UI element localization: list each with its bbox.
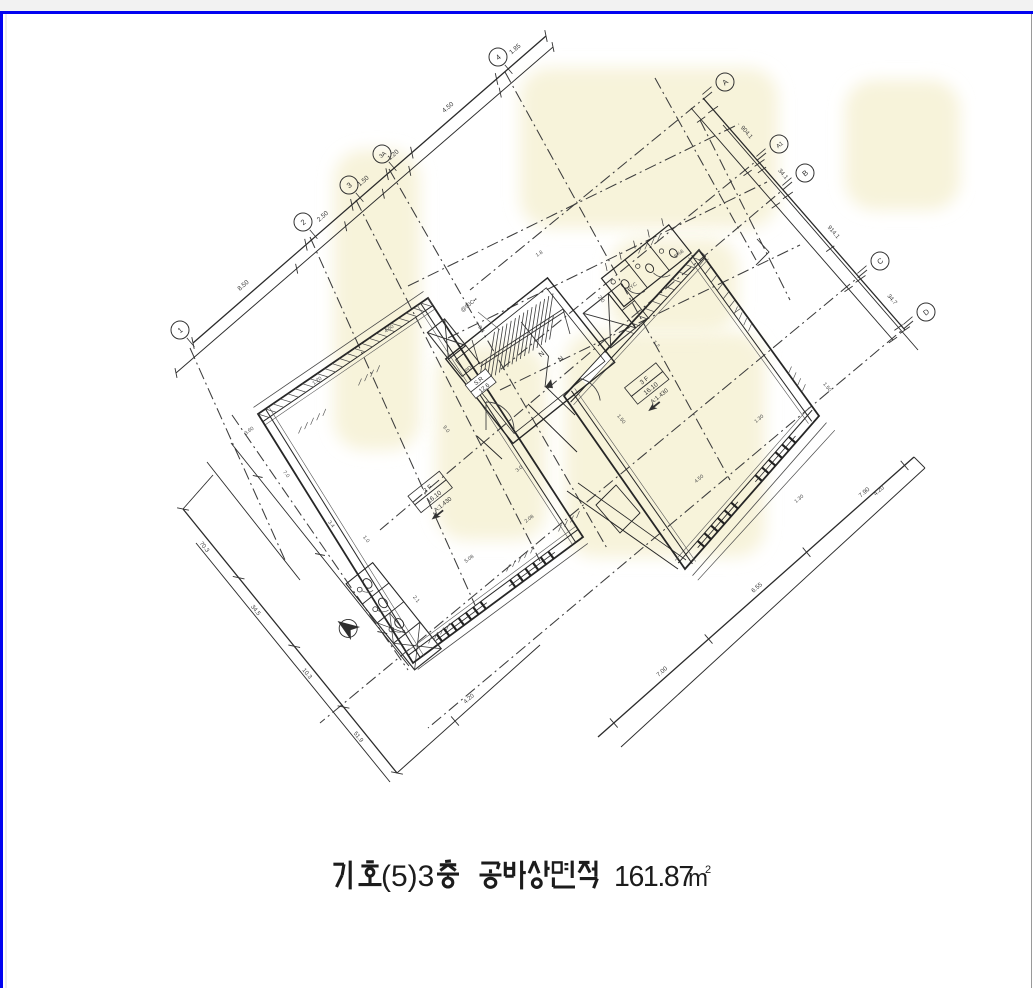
svg-text:2.50: 2.50 <box>316 210 330 224</box>
svg-text:4.20: 4.20 <box>873 485 886 498</box>
svg-text:914.1: 914.1 <box>826 225 841 241</box>
svg-text:8.50: 8.50 <box>236 279 250 293</box>
svg-text:1.0: 1.0 <box>361 535 370 544</box>
svg-text:3.60: 3.60 <box>244 426 256 437</box>
svg-text:1.8: 1.8 <box>535 250 544 259</box>
svg-text:2: 2 <box>705 864 711 876</box>
svg-text:(5)3: (5)3 <box>381 860 434 893</box>
svg-text:161.87: 161.87 <box>614 861 693 893</box>
svg-text:D: D <box>921 307 931 318</box>
svg-text:1.85: 1.85 <box>508 42 522 56</box>
svg-text:2.1: 2.1 <box>411 595 420 604</box>
svg-text:3.4: 3.4 <box>326 520 335 529</box>
svg-text:4.50: 4.50 <box>441 101 455 115</box>
svg-text:1.20: 1.20 <box>312 376 324 387</box>
svg-text:@50C••: @50C•• <box>460 297 479 314</box>
svg-text:B: B <box>800 168 810 178</box>
svg-text:6.55: 6.55 <box>750 581 764 595</box>
svg-text:3 F: 3 F <box>422 484 434 495</box>
svg-text:5.08: 5.08 <box>464 554 476 565</box>
svg-text:1.50: 1.50 <box>821 382 832 394</box>
svg-text:7.00: 7.00 <box>655 665 669 679</box>
svg-text:2: 2 <box>299 217 308 227</box>
svg-text:N: N <box>557 355 565 364</box>
svg-text:7.0: 7.0 <box>281 470 290 479</box>
svg-text:4: 4 <box>494 52 503 62</box>
svg-text:1: 1 <box>176 325 185 335</box>
svg-text:34.7: 34.7 <box>885 293 898 306</box>
svg-text:34.1: 34.1 <box>776 168 789 181</box>
svg-text:1.30: 1.30 <box>794 494 806 505</box>
svg-text:C: C <box>875 256 885 267</box>
